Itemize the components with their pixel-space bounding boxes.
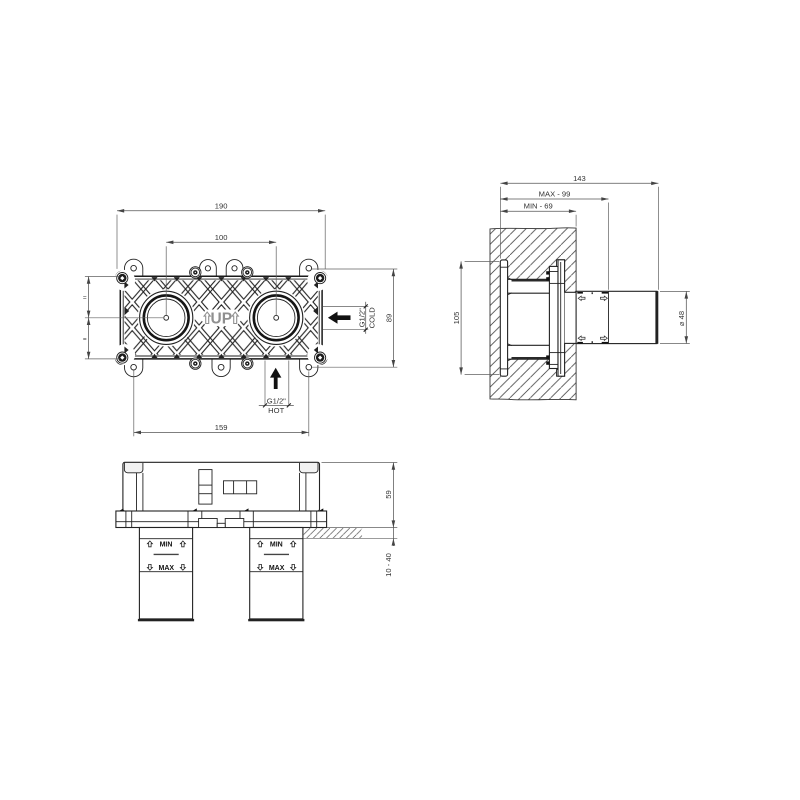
svg-text:COLD: COLD [367, 307, 376, 329]
svg-text:143: 143 [573, 174, 586, 183]
svg-text:100: 100 [215, 233, 228, 242]
svg-text:MAX: MAX [159, 565, 175, 572]
svg-text:MAX: MAX [269, 565, 285, 572]
svg-text:=: = [83, 336, 87, 343]
svg-text:HOT: HOT [268, 406, 284, 415]
svg-text:59: 59 [384, 490, 393, 498]
svg-text:190: 190 [215, 201, 228, 210]
svg-text:G1/2": G1/2" [358, 308, 367, 327]
svg-text:UP: UP [211, 310, 233, 327]
svg-text:MIN: MIN [270, 542, 283, 549]
svg-text:MIN - 69: MIN - 69 [524, 202, 553, 211]
svg-text:10 - 40: 10 - 40 [384, 553, 393, 577]
svg-text:MAX - 99: MAX - 99 [539, 190, 571, 199]
svg-text:105: 105 [452, 312, 461, 325]
svg-text:=: = [83, 295, 87, 302]
svg-text:159: 159 [215, 423, 228, 432]
svg-text:89: 89 [384, 314, 393, 322]
svg-text:⌀ 48: ⌀ 48 [677, 311, 686, 326]
svg-text:MIN: MIN [160, 542, 173, 549]
svg-text:G1/2": G1/2" [267, 396, 286, 405]
